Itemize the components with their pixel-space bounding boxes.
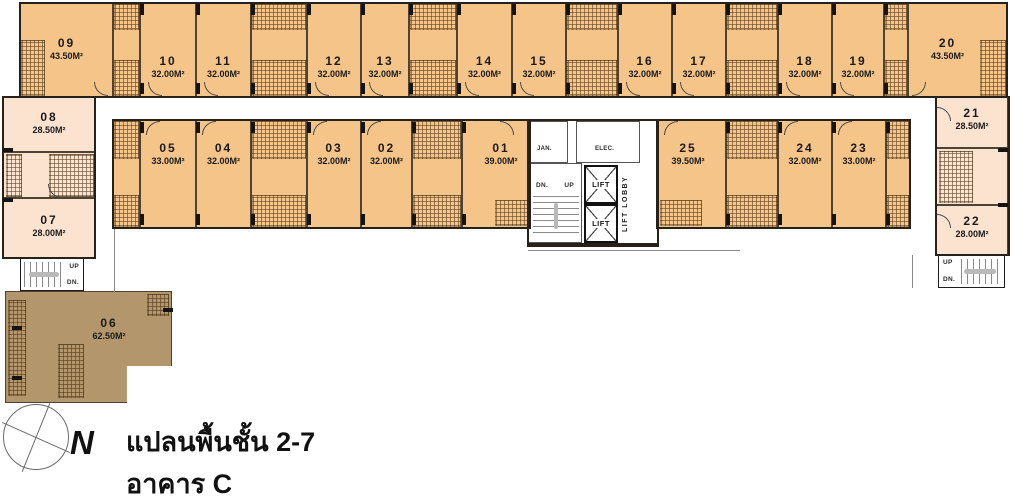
unit-number: 11 xyxy=(197,54,250,69)
stair-dn-label: DN. xyxy=(943,276,955,283)
unit-number: 06 xyxy=(64,316,154,331)
hatch xyxy=(567,60,617,96)
unit-area: 32.00M² xyxy=(308,156,360,167)
unit-02: 02 32.00M² xyxy=(361,120,412,228)
stair-dn-label: DN. xyxy=(67,279,79,286)
plan-title-line2: อาคาร C xyxy=(126,462,232,500)
unit-area: 32.00M² xyxy=(779,69,831,80)
unit-label: 10 32.00M² xyxy=(141,54,195,80)
unit-area: 32.00M² xyxy=(197,156,250,167)
unit-label: 05 33.00M² xyxy=(141,141,195,167)
unit-number: 24 xyxy=(779,141,831,156)
bath-block xyxy=(884,3,908,97)
hatch xyxy=(727,195,777,227)
unit-area: 39.50M² xyxy=(651,156,725,167)
hatch xyxy=(413,121,461,159)
unit-number: 18 xyxy=(779,54,831,69)
bath-block xyxy=(409,3,457,97)
unit-number: 17 xyxy=(673,54,725,69)
unit-number: 03 xyxy=(308,141,360,156)
bath-block xyxy=(412,120,462,228)
unit-number: 21 xyxy=(937,106,1007,121)
hatch xyxy=(6,154,22,197)
hatch xyxy=(887,195,909,227)
stair-rail xyxy=(964,269,996,274)
unit-number: 07 xyxy=(4,213,94,228)
hatch xyxy=(252,4,306,30)
unit-area: 33.00M² xyxy=(141,156,195,167)
unit-number: 15 xyxy=(513,54,565,69)
unit-number: 25 xyxy=(651,141,725,156)
stairs-right: UP DN. xyxy=(938,255,1005,288)
hatch xyxy=(887,121,909,159)
core-up-label: UP xyxy=(564,182,574,189)
lift-1-label: LIFT xyxy=(590,180,612,189)
stair-up-label: UP xyxy=(943,259,953,266)
unit-area: 33.00M² xyxy=(833,156,885,167)
hatch xyxy=(49,154,94,197)
hatch xyxy=(252,195,306,227)
hatch xyxy=(980,40,1006,96)
unit-number: 05 xyxy=(141,141,195,156)
unit-label: 24 32.00M² xyxy=(779,141,831,167)
unit-12: 12 32.00M² xyxy=(307,3,361,97)
unit-area: 28.00M² xyxy=(937,229,1007,240)
unit-label: 14 32.00M² xyxy=(458,54,511,80)
unit-area: 39.00M² xyxy=(473,156,529,167)
unit-label: 23 33.00M² xyxy=(833,141,885,167)
unit-area: 32.00M² xyxy=(141,69,195,80)
unit-area: 32.00M² xyxy=(362,69,408,80)
hatch xyxy=(885,60,907,96)
unit-21: 21 28.50M² xyxy=(936,97,1008,148)
unit-label: 25 39.50M² xyxy=(651,141,725,167)
balcony-hatch xyxy=(660,200,702,226)
unit-area: 32.00M² xyxy=(619,69,671,80)
lift-2: LIFT xyxy=(584,204,618,243)
room-electrical: ELEC. xyxy=(576,121,640,163)
unit-03: 03 32.00M² xyxy=(307,120,361,228)
hatch xyxy=(252,121,306,159)
balcony-hatch xyxy=(495,200,528,226)
hatch xyxy=(252,60,306,96)
unit-label: 12 32.00M² xyxy=(308,54,360,80)
unit-number: 12 xyxy=(308,54,360,69)
unit-number: 16 xyxy=(619,54,671,69)
bath-block xyxy=(251,120,307,228)
floor-plan: 09 43.50M² 10 32.00M² 11 32.00M² 12 32.0… xyxy=(0,0,1024,500)
core-dn-label: DN. xyxy=(536,182,548,189)
unit-area: 32.00M² xyxy=(779,156,831,167)
lift-lobby-label: LIFT LOBBY xyxy=(622,163,638,245)
hatch xyxy=(567,4,617,30)
unit-label: 01 39.00M² xyxy=(473,141,529,167)
stair-rail xyxy=(29,272,59,277)
bath-block xyxy=(251,3,307,97)
unit-25: 25 39.50M² xyxy=(658,120,726,228)
unit-area: 28.50M² xyxy=(937,121,1007,132)
lift-1: LIFT xyxy=(584,165,618,204)
unit-01: 01 39.00M² xyxy=(462,120,530,228)
compass xyxy=(3,404,69,470)
unit-label: 04 32.00M² xyxy=(197,141,250,167)
unit-area: 28.00M² xyxy=(4,228,94,239)
stairwell-core: DN. UP xyxy=(528,163,582,243)
unit-label: 03 32.00M² xyxy=(308,141,360,167)
plan-title-line1: แปลนพื้นชั้น 2-7 xyxy=(126,420,315,463)
unit-label: 19 32.00M² xyxy=(833,54,883,80)
unit-number: 22 xyxy=(937,214,1007,229)
unit-label: 16 32.00M² xyxy=(619,54,671,80)
unit-area: 32.00M² xyxy=(362,156,411,167)
unit-label: 06 62.50M² xyxy=(64,316,154,342)
unit-label: 08 28.50M² xyxy=(4,110,94,136)
unit-number: 14 xyxy=(458,54,511,69)
unit-number: 01 xyxy=(473,141,529,156)
hatch xyxy=(727,121,777,159)
hatch xyxy=(885,4,907,30)
unit-number: 13 xyxy=(362,54,408,69)
hatch xyxy=(727,4,777,30)
hatch xyxy=(939,151,973,203)
unit-area: 32.00M² xyxy=(513,69,565,80)
room-janitor: JAN. xyxy=(530,121,568,163)
unit-label: 22 28.00M² xyxy=(937,214,1007,240)
bath-block xyxy=(886,120,910,228)
unit-label: 21 28.50M² xyxy=(937,106,1007,132)
unit-number: 10 xyxy=(141,54,195,69)
connector-line xyxy=(912,255,913,288)
janitor-label: JAN. xyxy=(537,146,552,152)
hatch xyxy=(147,294,169,316)
stairs-left: UP DN. xyxy=(20,258,84,291)
unit-number: 04 xyxy=(197,141,250,156)
unit-number: 08 xyxy=(4,110,94,125)
hatch xyxy=(114,121,139,159)
unit-11: 11 32.00M² xyxy=(196,3,251,97)
unit-area: 32.00M² xyxy=(458,69,511,80)
unit-number: 23 xyxy=(833,141,885,156)
bath-block xyxy=(726,3,778,97)
hatch xyxy=(58,344,84,398)
unit-07: 07 28.00M² xyxy=(3,198,95,258)
connector-line xyxy=(114,228,115,292)
unit-18: 18 32.00M² xyxy=(778,3,832,97)
unit-10: 10 32.00M² xyxy=(140,3,196,97)
unit-area: 32.00M² xyxy=(197,69,250,80)
unit-number: 19 xyxy=(833,54,883,69)
wall-column-marks xyxy=(3,148,13,152)
hatch xyxy=(413,195,461,227)
terrace-line xyxy=(528,250,740,251)
unit-16: 16 32.00M² xyxy=(618,3,672,97)
bath-block xyxy=(566,3,618,97)
unit-14: 14 32.00M² xyxy=(457,3,512,97)
hatch xyxy=(114,195,139,227)
unit-04: 04 32.00M² xyxy=(196,120,251,228)
unit-area: 32.00M² xyxy=(833,69,883,80)
unit-15: 15 32.00M² xyxy=(512,3,566,97)
hatch xyxy=(21,40,45,96)
unit-06: 06 62.50M² xyxy=(5,291,172,403)
bath-block xyxy=(113,120,140,228)
unit-area: 32.00M² xyxy=(673,69,725,80)
unit-17: 17 32.00M² xyxy=(672,3,726,97)
unit-13: 13 32.00M² xyxy=(361,3,409,97)
wall-column-marks xyxy=(140,4,144,15)
hatch xyxy=(410,60,456,96)
hatch xyxy=(114,4,139,30)
unit-label: 18 32.00M² xyxy=(779,54,831,80)
unit-area: 28.50M² xyxy=(4,125,94,136)
unit-08: 08 28.50M² xyxy=(3,97,95,152)
unit-area: 32.00M² xyxy=(308,69,360,80)
unit-label: 02 32.00M² xyxy=(362,141,411,167)
bath-block xyxy=(936,148,1008,205)
unit-22: 22 28.00M² xyxy=(936,205,1008,255)
north-label: N xyxy=(70,424,94,462)
unit-label: 07 28.00M² xyxy=(4,213,94,239)
unit-label: 11 32.00M² xyxy=(197,54,250,80)
electrical-label: ELEC. xyxy=(595,146,614,152)
bath-block xyxy=(113,3,140,97)
unit-label: 15 32.00M² xyxy=(513,54,565,80)
unit-number: 02 xyxy=(362,141,411,156)
bath-block xyxy=(3,152,95,198)
unit-24: 24 32.00M² xyxy=(778,120,832,228)
stair-rail xyxy=(554,203,558,229)
stair-up-label: UP xyxy=(69,263,79,270)
unit-23: 23 33.00M² xyxy=(832,120,886,228)
unit-label: 17 32.00M² xyxy=(673,54,725,80)
unit-19: 19 32.00M² xyxy=(832,3,884,97)
hatch xyxy=(114,60,139,96)
bath-block xyxy=(726,120,778,228)
unit-area: 62.50M² xyxy=(64,331,154,342)
unit-05: 05 33.00M² xyxy=(140,120,196,228)
hatch xyxy=(410,4,456,30)
hatch xyxy=(8,300,26,396)
lift-2-label: LIFT xyxy=(590,219,612,228)
hatch xyxy=(727,60,777,96)
unit-label: 13 32.00M² xyxy=(362,54,408,80)
